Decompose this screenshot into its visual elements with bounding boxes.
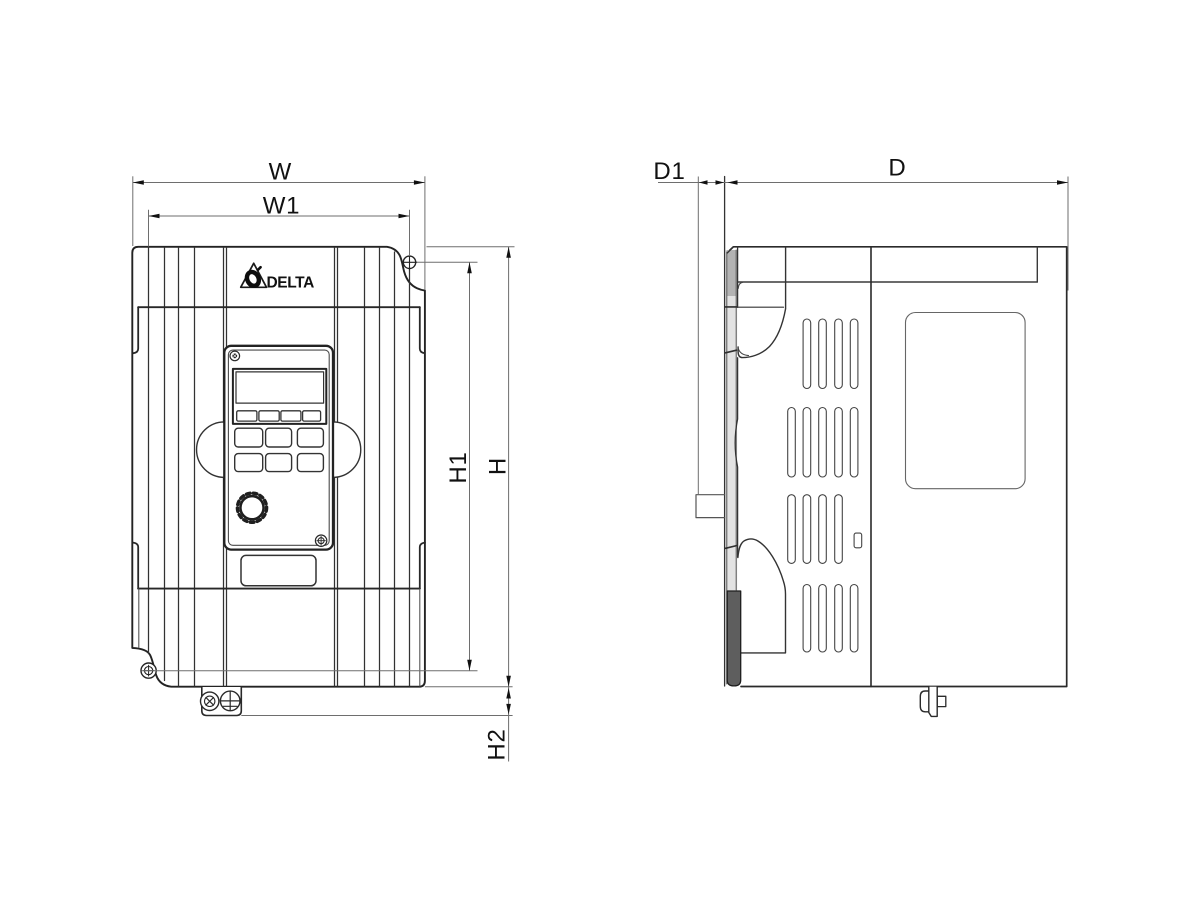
svg-text:W: W (269, 158, 292, 185)
svg-text:D: D (888, 155, 905, 182)
svg-text:DELTA: DELTA (267, 275, 315, 292)
svg-text:H1: H1 (445, 451, 472, 483)
svg-text:H: H (485, 458, 512, 475)
svg-text:D1: D1 (653, 158, 685, 185)
svg-text:H2: H2 (484, 728, 511, 760)
svg-text:W1: W1 (263, 193, 301, 220)
